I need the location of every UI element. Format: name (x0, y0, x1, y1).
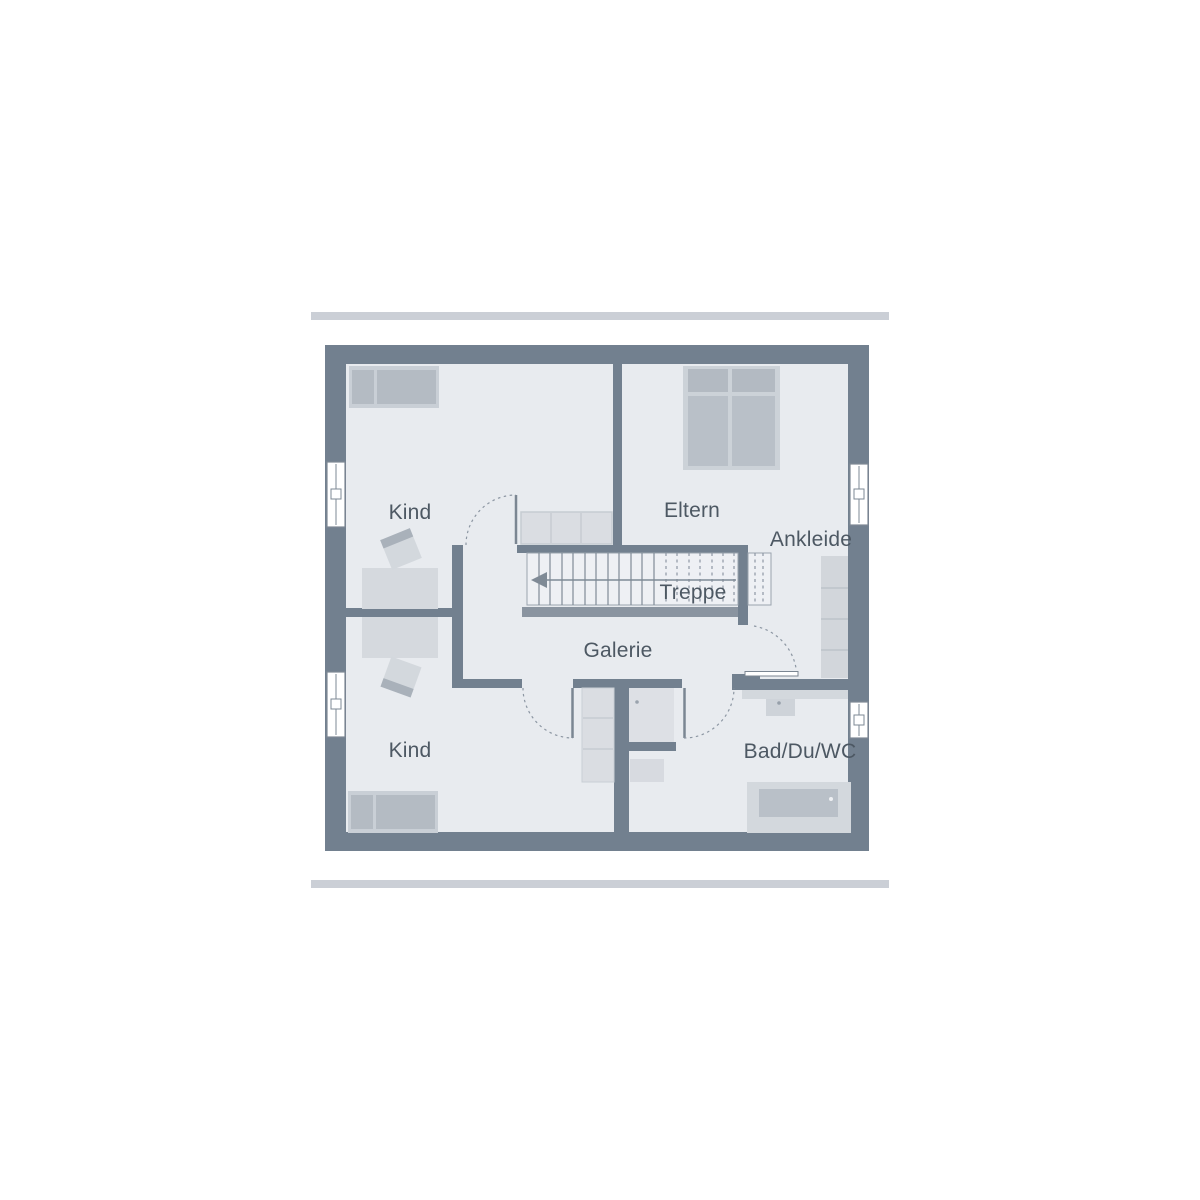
wall-bottom (325, 832, 869, 851)
wall-kind-bottom-stub (452, 679, 522, 688)
label-kind-bottom: Kind (389, 739, 432, 762)
wall-kind-eltern (613, 364, 622, 545)
bed-eltern-double (683, 366, 780, 470)
tub-drain-icon (829, 797, 833, 801)
label-galerie: Galerie (583, 639, 652, 662)
wall-bad-top (732, 679, 848, 690)
label-kind-top: Kind (389, 501, 432, 524)
bed-kind-top (349, 366, 439, 408)
desk-kind-top (362, 568, 438, 609)
window-kind-top (327, 462, 345, 527)
cabinet-galerie (582, 688, 614, 782)
desk-kind-bottom (362, 617, 438, 658)
basin-drain-icon (777, 701, 781, 705)
wall-shower-bottom (629, 742, 676, 751)
wardrobe-ankleide (821, 556, 848, 678)
floor-plan-canvas: Kind Eltern Ankleide Treppe Galerie Kind… (0, 0, 1200, 1200)
wall-left (325, 345, 346, 851)
washbasin-bad (766, 699, 795, 716)
wall-kind-kind (346, 608, 452, 617)
staircase (527, 553, 771, 605)
shower (629, 688, 674, 742)
bottom-accent-bar (311, 880, 889, 888)
label-eltern: Eltern (664, 499, 720, 522)
wall-right (848, 345, 869, 851)
top-accent-bar (311, 312, 889, 320)
stair-stringer (522, 607, 738, 617)
sideboard-hall (521, 512, 612, 544)
shower-drain-icon (635, 700, 639, 704)
window-kind-bottom (327, 672, 345, 737)
label-bad: Bad/Du/WC (744, 740, 857, 763)
bed-kind-bottom (348, 791, 438, 833)
window-eltern (850, 464, 868, 525)
stair-flight-upper (748, 553, 771, 605)
wall-stair-right (738, 545, 748, 625)
wall-top (325, 345, 869, 364)
washbasin-center (630, 759, 664, 782)
window-bad (850, 702, 868, 738)
wall-stair-top (517, 545, 748, 553)
bathtub (747, 782, 851, 833)
wall-center-vertical (614, 688, 629, 832)
label-ankleide: Ankleide (770, 528, 852, 551)
wall-hall-left (452, 545, 463, 688)
floor-plan-page: Kind Eltern Ankleide Treppe Galerie Kind… (0, 0, 1200, 1200)
wall-galerie-center (573, 679, 682, 688)
label-treppe: Treppe (660, 581, 727, 604)
